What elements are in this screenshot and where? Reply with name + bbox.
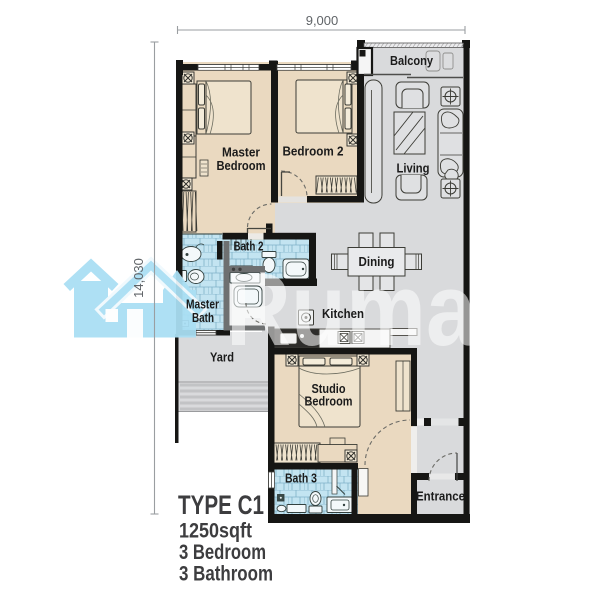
svg-text:14,030: 14,030 xyxy=(131,258,146,298)
svg-text:Master: Master xyxy=(186,298,219,312)
svg-text:Living: Living xyxy=(397,161,430,176)
svg-text:Entrance: Entrance xyxy=(416,489,465,504)
svg-text:Bath: Bath xyxy=(192,311,214,325)
svg-text:TYPE C1: TYPE C1 xyxy=(178,490,264,520)
svg-text:3 Bedroom: 3 Bedroom xyxy=(179,541,266,564)
svg-text:Bedroom: Bedroom xyxy=(217,158,266,173)
svg-text:9,000: 9,000 xyxy=(306,13,339,28)
svg-text:Bath 3: Bath 3 xyxy=(285,472,317,486)
svg-text:Kitchen: Kitchen xyxy=(322,306,364,321)
svg-text:Bedroom: Bedroom xyxy=(305,394,353,409)
svg-text:Bath 2: Bath 2 xyxy=(234,240,264,254)
svg-text:3 Bathroom: 3 Bathroom xyxy=(179,563,273,586)
svg-text:Dining: Dining xyxy=(359,254,395,269)
svg-text:Yard: Yard xyxy=(210,350,234,365)
svg-text:Balcony: Balcony xyxy=(390,53,434,68)
svg-text:Bedroom 2: Bedroom 2 xyxy=(283,144,344,159)
svg-text:1250sqft: 1250sqft xyxy=(179,520,252,543)
